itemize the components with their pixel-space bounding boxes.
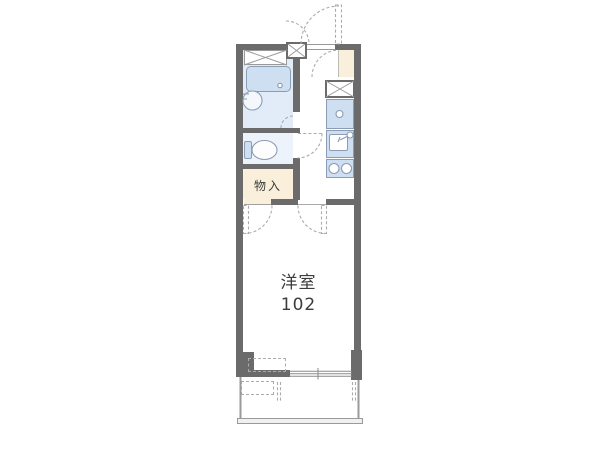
toilet-door-icon bbox=[298, 134, 323, 159]
plan-symbol-overlay bbox=[0, 0, 600, 450]
main-room-number: 102 bbox=[243, 294, 354, 316]
washer-cross-icon bbox=[326, 81, 354, 97]
main-room-name: 洋室 bbox=[243, 272, 354, 294]
shoe-cabinet-cross-icon bbox=[288, 44, 305, 57]
genkan-door-arc-icon bbox=[312, 50, 339, 77]
balcony-rails bbox=[241, 377, 359, 418]
bathroom-door-icon bbox=[281, 116, 293, 128]
storage-room-label: 物入 bbox=[243, 177, 293, 194]
closet-door-icon bbox=[244, 206, 273, 234]
bathroom-shelf-cross-icon bbox=[244, 50, 287, 65]
main-room-label: 洋室 102 bbox=[243, 272, 354, 316]
bathtub-drain-icon bbox=[278, 83, 282, 87]
kitchen-faucet-icon bbox=[338, 132, 353, 142]
entrance-door-icon bbox=[286, 5, 342, 44]
floor-plan: 物入 洋室 102 bbox=[0, 0, 600, 450]
stove-burners-icon bbox=[329, 164, 352, 174]
sliding-window-icon bbox=[290, 368, 352, 380]
counter-circle-icon bbox=[336, 111, 343, 118]
wash-basin-icon bbox=[243, 91, 262, 110]
room-door-icon bbox=[298, 206, 327, 234]
toilet-bowl-icon bbox=[252, 141, 277, 160]
